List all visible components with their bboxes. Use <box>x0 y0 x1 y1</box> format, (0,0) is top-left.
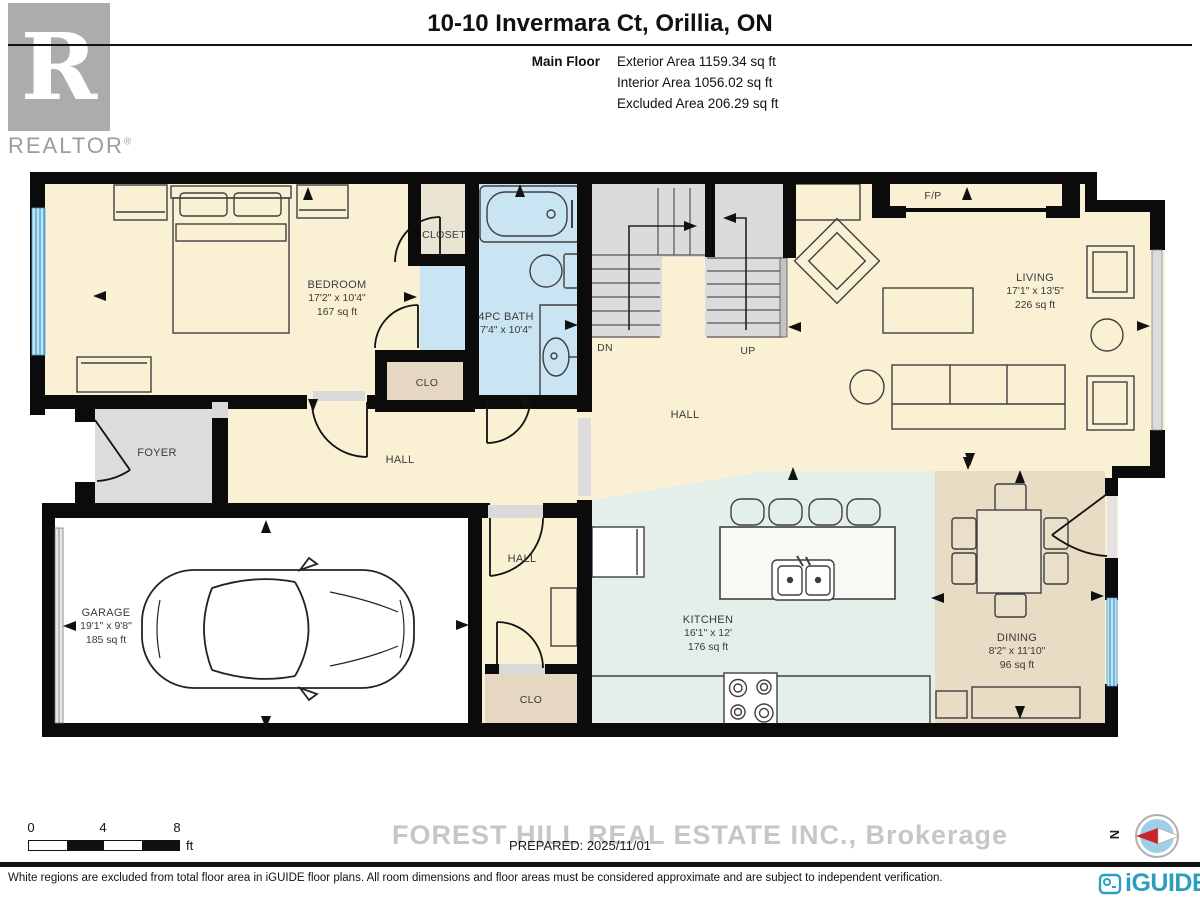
scale-tick: 8 <box>173 820 180 835</box>
scale-tick: 0 <box>27 820 34 835</box>
scale-unit: ft <box>186 838 193 853</box>
dining-label: DINING8'2" x 11'10"96 sq ft <box>989 631 1046 673</box>
compass-north-label: N <box>1107 830 1122 839</box>
dining-table <box>977 510 1041 593</box>
hall-center-label: HALL <box>671 408 700 422</box>
compass-icon <box>1126 805 1188 867</box>
stairs-void <box>662 257 705 337</box>
bedroom-window <box>32 208 45 355</box>
bath-floor <box>477 184 577 402</box>
scale-bar: 0 4 8 ft <box>28 820 248 860</box>
living-label: LIVING17'1" x 13'5"226 sq ft <box>1006 271 1064 313</box>
iguide-camera-icon <box>1098 872 1122 896</box>
iguide-logo: iGUIDE <box>1098 869 1200 898</box>
footer-divider <box>0 862 1200 867</box>
door-jamb <box>1107 496 1117 558</box>
foyer-label: FOYER <box>137 446 176 460</box>
threshold <box>499 664 545 674</box>
prepared-date: PREPARED: 2025/11/01 <box>340 838 820 853</box>
bedroom-label: BEDROOM17'2" x 10'4"167 sq ft <box>308 278 367 320</box>
threshold <box>578 418 591 496</box>
garage-door <box>55 528 63 723</box>
disclaimer-text: White regions are excluded from total fl… <box>8 872 1088 884</box>
closet-floor <box>420 184 465 256</box>
hall-south-label: HALL <box>508 552 537 566</box>
hall-west-label: HALL <box>386 453 415 467</box>
stairs-down-label: DN <box>597 342 613 356</box>
scale-tick: 4 <box>99 820 106 835</box>
fireplace-label: F/P <box>924 190 941 204</box>
garage-label: GARAGE19'1" x 9'8"185 sq ft <box>80 606 132 648</box>
floorplan-page: { "header": { "title": "10-10 Invermara … <box>0 0 1200 899</box>
living-window <box>1152 250 1162 430</box>
scale-bar-segments <box>28 840 180 851</box>
kitchen-sink <box>772 556 834 600</box>
compass: N <box>1126 805 1188 867</box>
threshold <box>313 391 365 401</box>
clo-upper-label: CLO <box>416 377 439 391</box>
stove <box>724 673 777 725</box>
closet-label: CLOSET <box>422 229 466 243</box>
stairs-up-label: UP <box>740 345 755 359</box>
clo-lower-label: CLO <box>520 694 543 708</box>
threshold <box>212 402 228 418</box>
iguide-brand-text: iGUIDE <box>1125 869 1200 898</box>
threshold <box>488 505 543 518</box>
fridge <box>592 527 644 577</box>
kitchen-label: KITCHEN16'1" x 12'176 sq ft <box>683 613 733 655</box>
bath-cubby-floor <box>420 266 465 352</box>
bath-label: 4PC BATH7'4" x 10'4" <box>478 310 533 338</box>
floorplan-graphic <box>0 0 1200 899</box>
dining-window <box>1107 598 1117 686</box>
